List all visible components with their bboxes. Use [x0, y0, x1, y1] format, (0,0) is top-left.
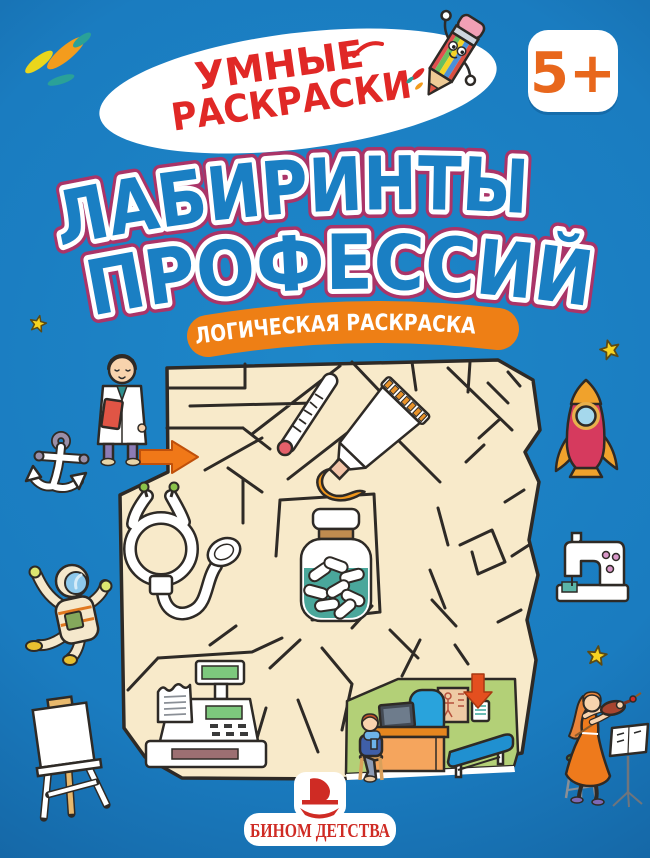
book-cover: УМНЫЕ РАСКРАСКИ — [0, 0, 650, 858]
doctor-character — [98, 355, 146, 466]
anchor-icon — [26, 435, 89, 489]
cover-illustration: УМНЫЕ РАСКРАСКИ — [0, 0, 650, 858]
publisher-logo: БИНОМ ДЕТСТВА — [244, 772, 396, 846]
astronaut-character — [26, 565, 112, 665]
doctors-office-scene — [346, 674, 518, 782]
rocket-icon — [556, 380, 617, 477]
violinist-character — [566, 692, 648, 807]
pencil-glove — [440, 9, 452, 21]
paint-strokes-decoration — [22, 30, 93, 88]
publisher-name: БИНОМ ДЕТСТВА — [250, 820, 390, 842]
easel-icon — [28, 694, 108, 818]
rocket-window — [577, 407, 596, 426]
age-badge-label: 5+ — [530, 41, 616, 106]
sewing-machine-icon — [557, 533, 628, 601]
music-stand — [610, 724, 648, 807]
age-badge: 5+ — [528, 30, 618, 115]
subtitle-pill: ЛОГИЧЕСКАЯ РАСКРАСКА — [193, 310, 498, 350]
maze — [120, 360, 540, 782]
